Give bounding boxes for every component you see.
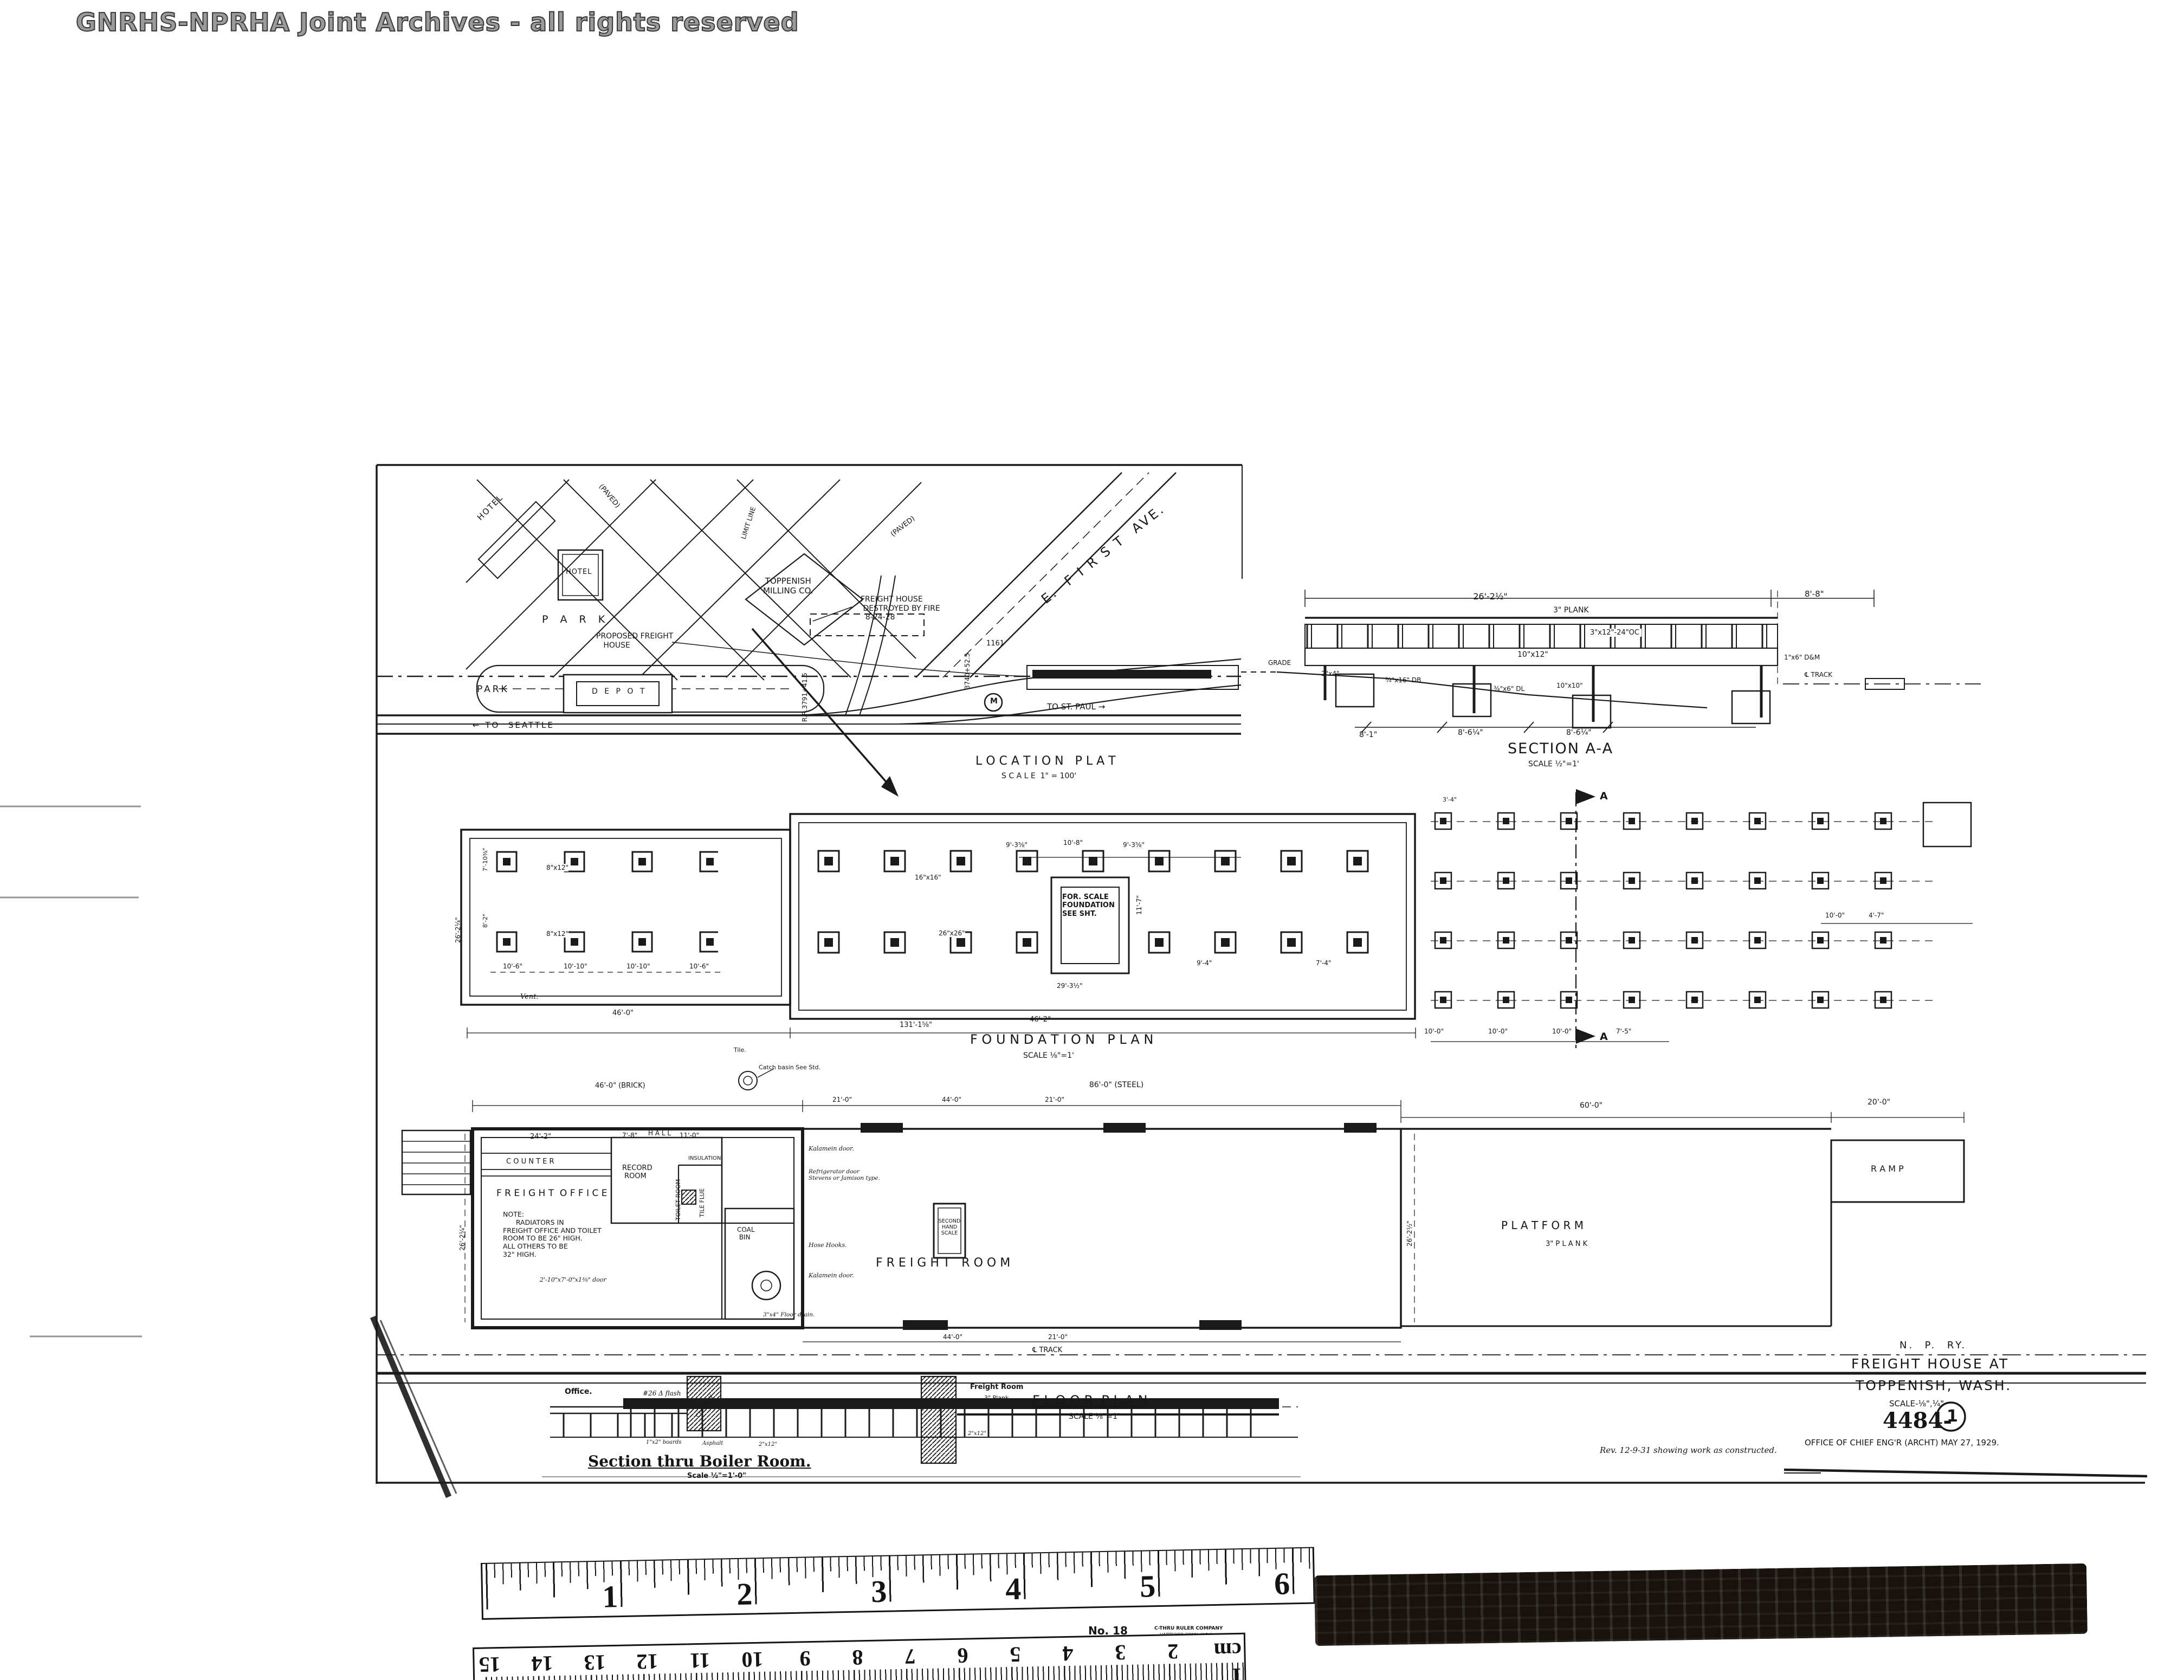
sectionaa-dm-label: 1"x6" D&M bbox=[1784, 654, 1820, 661]
sectionaa-dim-86a: 8'-6¼" bbox=[1458, 728, 1483, 738]
kalamein-door-b-label: Kalamein door. bbox=[809, 1272, 854, 1280]
fnd-dim-100c: 10'-0" bbox=[1552, 1028, 1572, 1035]
cm-5: 5 bbox=[1010, 1642, 1021, 1668]
location-plat-title: L O C A T I O N P L A T bbox=[975, 754, 1116, 768]
asphalt-label: Asphalt bbox=[702, 1440, 723, 1447]
fnd-dim-100a: 10'-0" bbox=[1424, 1028, 1444, 1035]
foundation-plan-title: F O U N D A T I O N P L A N bbox=[970, 1032, 1153, 1047]
location-plat-scale: S C A L E 1" = 100' bbox=[1001, 772, 1076, 781]
record-room-label: RECORD ROOM bbox=[622, 1164, 652, 1181]
cm-9: 9 bbox=[799, 1646, 811, 1671]
sectionaa-joists-label: 3"x12"-24"OC bbox=[1588, 629, 1642, 637]
cut-label-a-top: A bbox=[1600, 790, 1608, 802]
fnd-dim-131: 131'-1⅝" bbox=[900, 1021, 932, 1029]
vent-label: Vent. bbox=[520, 993, 539, 1001]
counter-label: C O U N T E R bbox=[506, 1158, 554, 1166]
ruler-number-3: 3 bbox=[871, 1573, 887, 1610]
titleblock-railway: N. P. RY. bbox=[1899, 1340, 1967, 1351]
foundation-scale-pit-note: FOR. SCALE FOUNDATION SEE SHT. bbox=[1062, 893, 1115, 918]
cm-3: 3 bbox=[1115, 1640, 1126, 1665]
sectionaa-track-label: ℄ TRACK bbox=[1805, 671, 1832, 679]
floor-dim-brick: 46'-0" (BRICK) bbox=[595, 1082, 645, 1090]
fnd-dim-2932: 29'-3½" bbox=[1057, 982, 1083, 990]
cm-15: 15 bbox=[479, 1652, 501, 1678]
mark-1161: 1161 bbox=[986, 639, 1004, 648]
boards-label: 1"x2" boards bbox=[646, 1439, 681, 1446]
hall-label: H A L L bbox=[648, 1129, 671, 1137]
archive-watermark: GNRHS-NPRHA Joint Archives - all rights … bbox=[76, 8, 799, 37]
freight-office-label: F R E I G H T O F F I C E bbox=[496, 1188, 608, 1199]
coal-bin-label: COAL BIN bbox=[737, 1226, 755, 1241]
platform-label: P L A T F O R M bbox=[1501, 1219, 1584, 1232]
sectionaa-grade-label: GRADE bbox=[1268, 659, 1291, 667]
scanned-drawing-sheet: GNRHS-NPRHA Joint Archives - all rights … bbox=[0, 0, 2184, 1680]
revision-note: Rev. 12-9-31 showing work as constructed… bbox=[1600, 1446, 1777, 1456]
fnd-dim-460: 46'-0" bbox=[612, 1009, 634, 1017]
cm-13: 13 bbox=[584, 1650, 606, 1676]
fnd-dim-106b: 10'-6" bbox=[689, 962, 709, 970]
ruler-number-2: 2 bbox=[736, 1575, 753, 1612]
boiler-plank-label: 3" Plank bbox=[984, 1395, 1009, 1402]
foundation-plan-lines bbox=[461, 789, 1973, 1051]
floor-dim-20: 20'-0" bbox=[1868, 1098, 1890, 1107]
sectionaa-dim-88: 8'-8" bbox=[1805, 590, 1824, 599]
cm-12: 12 bbox=[636, 1649, 658, 1675]
survey-mark-1: R.R.3791+41.5 bbox=[801, 673, 809, 722]
tile-flue-label: TILE FLUE bbox=[699, 1188, 706, 1217]
pier-8x12-a: 8"x12" bbox=[546, 864, 568, 871]
fnd-dim-100b: 10'-0" bbox=[1488, 1028, 1508, 1035]
tile-label: Tile. bbox=[734, 1047, 746, 1054]
floor-dim-60: 60'-0" bbox=[1580, 1101, 1603, 1110]
fnd-dim-117: 11'-7" bbox=[1135, 895, 1143, 915]
sectionaa-scale: SCALE ½"=1' bbox=[1528, 760, 1579, 769]
floor-plan-scale: SCALE ⅛"=1' bbox=[1069, 1412, 1120, 1421]
floor-dim-21a: 21'-0" bbox=[832, 1096, 852, 1103]
proposed-freight-house-note: PROPOSED FREIGHT HOUSE bbox=[596, 632, 673, 650]
sectionaa-10x10-label: 10"x10" bbox=[1556, 682, 1583, 689]
floor-dim-44b: 44'-0" bbox=[943, 1333, 962, 1341]
ramp-label: R A M P bbox=[1871, 1164, 1904, 1174]
cm-8: 8 bbox=[852, 1645, 863, 1670]
pier-8x12-b: 8"x12" bbox=[546, 930, 568, 938]
survey-mark-2: 3740+52.5 bbox=[964, 653, 971, 689]
section-aa-lines bbox=[1241, 590, 1981, 733]
floor-dim-78: 7'-8" bbox=[622, 1132, 637, 1139]
boiler-section-scale: Scale ½"=1'-0" bbox=[687, 1472, 746, 1480]
fnd-dim-47: 4'-7" bbox=[1869, 912, 1884, 919]
floor-dim-2622a: 26'-2½" bbox=[1406, 1220, 1413, 1246]
ruler-number-6: 6 bbox=[1274, 1565, 1290, 1602]
fnd-dim-106a: 10'-6" bbox=[503, 962, 522, 970]
cm-11: 11 bbox=[689, 1648, 710, 1674]
fnd-dim-108: 10'-8" bbox=[1063, 839, 1083, 847]
toilet-room-label: TOILET ROOM bbox=[675, 1179, 682, 1220]
inked-stamp bbox=[1314, 1563, 2088, 1646]
sectionaa-2x4-label: 2"x4" bbox=[1321, 670, 1339, 677]
titleblock-drawing-number: 4484- bbox=[1883, 1408, 1952, 1433]
destroyed-freight-house-note: FREIGHT HOUSE DESTROYED BY FIRE 8-24-28 bbox=[861, 595, 940, 622]
insulation-label: INSULATION bbox=[688, 1155, 721, 1162]
ruler-number-1: 1 bbox=[602, 1578, 618, 1615]
floor-dim-44a: 44'-0" bbox=[942, 1096, 961, 1103]
refrigerator-door-label: Refrigerator door Stevens or Jamison typ… bbox=[809, 1168, 880, 1182]
hose-hooks-label: Hose Hooks. bbox=[809, 1242, 847, 1249]
titleblock-sheet-number: 1 bbox=[1947, 1407, 1958, 1426]
fnd-dim-75: 7'-5" bbox=[1616, 1028, 1631, 1035]
radiator-note: NOTE: RADIATORS IN FREIGHT OFFICE AND TO… bbox=[503, 1211, 602, 1259]
hotel-box-label: HOTEL bbox=[566, 568, 592, 576]
pier-26x26: 26"x26" bbox=[939, 929, 965, 937]
floor-dim-steel: 86'-0" (STEEL) bbox=[1089, 1081, 1143, 1090]
second-hand-scale-label: SECOND HAND SCALE bbox=[936, 1218, 963, 1237]
ruler-number-5: 5 bbox=[1140, 1568, 1156, 1605]
fnd-dim-1010a: 10'-10" bbox=[564, 962, 587, 970]
sectionaa-plank-label: 3" PLANK bbox=[1553, 606, 1589, 615]
fnd-dim-7103: 7'-10⅜" bbox=[482, 848, 489, 871]
titleblock-title-line1: FREIGHT HOUSE AT bbox=[1851, 1356, 2009, 1372]
milling-co-label: TOPPENISH MILLING CO. bbox=[763, 577, 813, 596]
fnd-dim-938b: 9'-3⅝" bbox=[1123, 841, 1145, 849]
sectionaa-dim-26: 26'-2½" bbox=[1473, 592, 1508, 602]
cm-2: 2 bbox=[1167, 1639, 1179, 1664]
fnd-dim-74: 7'-4" bbox=[1316, 959, 1331, 967]
kalamein-door-a-label: Kalamein door. bbox=[809, 1146, 854, 1153]
sectionaa-dim-81: 8'-1" bbox=[1359, 731, 1377, 740]
floor-plan-title: F L O O R P L A N bbox=[1032, 1393, 1148, 1408]
ruler-maker-line1: C-THRU RULER COMPANY bbox=[1154, 1626, 1223, 1632]
sectionaa-title: SECTION A-A bbox=[1508, 740, 1613, 758]
fnd-dim-1010b: 10'-10" bbox=[626, 962, 650, 970]
titleblock-office-date: OFFICE OF CHIEF ENG'R (ARCHT) MAY 27, 19… bbox=[1805, 1438, 1999, 1448]
to-st-paul-label: TO ST. PAUL → bbox=[1047, 702, 1105, 712]
floor-dim-242: 24'-2" bbox=[530, 1133, 551, 1141]
location-plat-lines bbox=[377, 473, 1241, 797]
fnd-dim-938a: 9'-3⅝" bbox=[1006, 841, 1028, 849]
cm-6: 6 bbox=[957, 1643, 968, 1668]
drawing-linework bbox=[0, 0, 2184, 1680]
freight-room-label: F R E I G H T R O O M bbox=[876, 1256, 1010, 1270]
cut-label-a-bottom: A bbox=[1600, 1031, 1608, 1043]
depot-label: D E P O T bbox=[592, 687, 647, 696]
fnd-dim-2624: 26'-2¼" bbox=[454, 917, 462, 943]
foundation-plan-scale: SCALE ⅛"=1' bbox=[1023, 1051, 1074, 1061]
park-upper-label: P A R K bbox=[542, 613, 609, 625]
cm-10: 10 bbox=[741, 1647, 764, 1673]
park-lower-label: PARK bbox=[477, 684, 509, 695]
fnd-dim-34: 3'-4" bbox=[1443, 797, 1457, 804]
joist-2x12-a-label: 2"x12" bbox=[759, 1442, 777, 1448]
cm-4: 4 bbox=[1062, 1641, 1074, 1666]
flash-note: #26 Δ flash bbox=[643, 1390, 681, 1397]
joist-2x12-b-label: 2"x12" bbox=[968, 1431, 986, 1437]
boiler-freight-room-label: Freight Room bbox=[970, 1383, 1023, 1391]
to-seattle-label: ← TO SEATTLE bbox=[473, 721, 554, 731]
fnd-dim-94: 9'-4" bbox=[1197, 959, 1212, 967]
office-door-note: 2'-10"x7'-0"x1⅜" door bbox=[540, 1277, 606, 1284]
fnd-dim-462: 46'-2" bbox=[1030, 1016, 1051, 1024]
floor-drain-label: 3"x4" Floor drain. bbox=[763, 1311, 815, 1318]
catch-basin-label: Catch basin See Std. bbox=[759, 1064, 820, 1071]
platform-plank-label: 3" P L A N K bbox=[1546, 1240, 1587, 1248]
titleblock-title-line2: TOPPENISH, WASH. bbox=[1856, 1378, 2012, 1394]
fnd-dim-100d: 10'-0" bbox=[1825, 912, 1845, 919]
pier-16x16: 16"x16" bbox=[915, 874, 941, 881]
floor-dim-21b: 21'-0" bbox=[1045, 1096, 1064, 1103]
boiler-office-label: Office. bbox=[565, 1387, 592, 1397]
sectionaa-dl-label: ¾"x6" DL bbox=[1494, 685, 1524, 693]
floor-dim-21c: 21'-0" bbox=[1048, 1333, 1068, 1341]
station-mark: M bbox=[990, 697, 998, 706]
sectionaa-beam-label: 10"x12" bbox=[1517, 650, 1548, 660]
ruler-number-4: 4 bbox=[1005, 1571, 1022, 1607]
boiler-section-title: Section thru Boiler Room. bbox=[588, 1452, 811, 1470]
cm-1-unit: 1 cm bbox=[1213, 1638, 1242, 1680]
cm-14: 14 bbox=[531, 1651, 553, 1677]
floor-track-label: ℄ TRACK bbox=[1032, 1346, 1062, 1354]
fnd-dim-82: 8'-2" bbox=[482, 914, 489, 928]
floor-dim-2622b: 26'-2¼" bbox=[458, 1225, 466, 1251]
cm-7: 7 bbox=[904, 1644, 916, 1669]
sectionaa-dim-86b: 8'-6¼" bbox=[1566, 728, 1592, 738]
sectionaa-db-label: ¾"x16" DB bbox=[1385, 676, 1421, 684]
floor-dim-110: 11'-0" bbox=[680, 1132, 699, 1139]
